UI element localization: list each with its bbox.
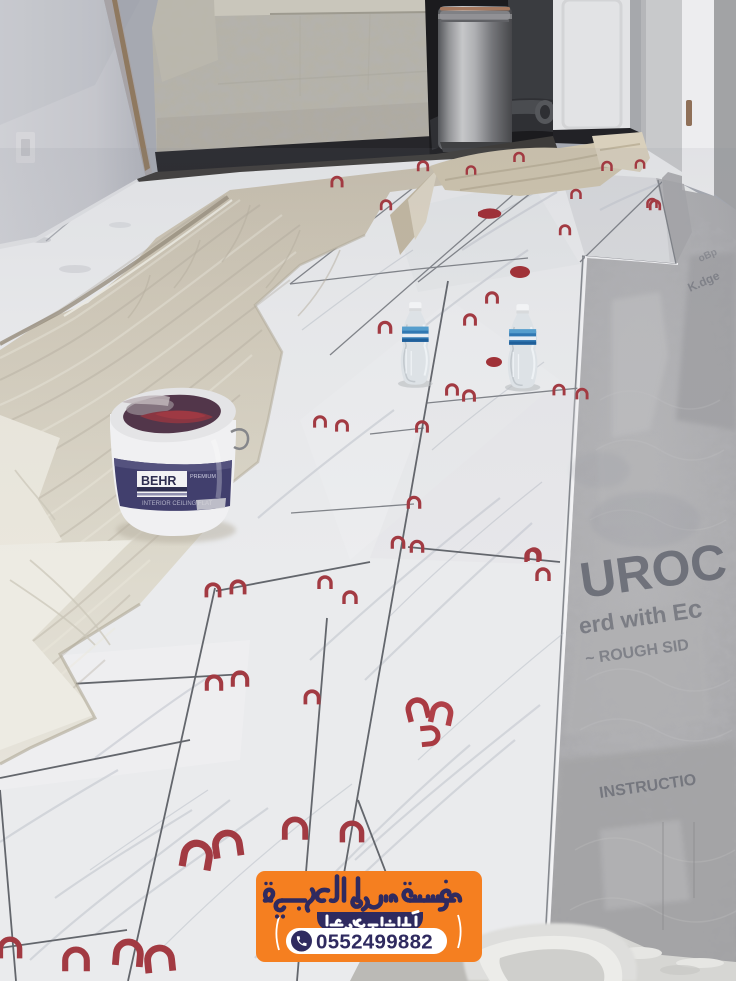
svg-text:PREMIUM: PREMIUM [190,474,216,480]
svg-text:BEHR: BEHR [141,474,176,488]
svg-text:0552499882: 0552499882 [316,931,433,954]
